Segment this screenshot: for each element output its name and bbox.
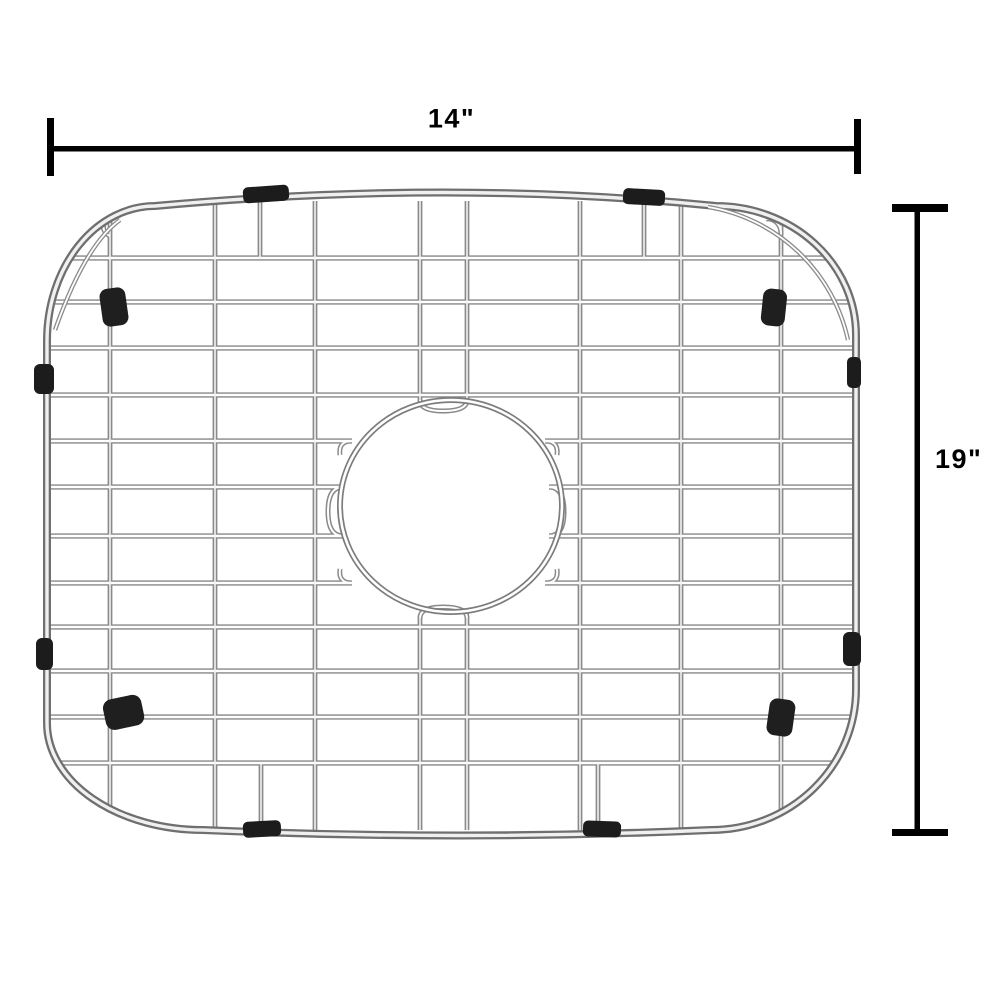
- svg-text:14": 14": [428, 104, 475, 134]
- svg-text:19": 19": [935, 444, 982, 474]
